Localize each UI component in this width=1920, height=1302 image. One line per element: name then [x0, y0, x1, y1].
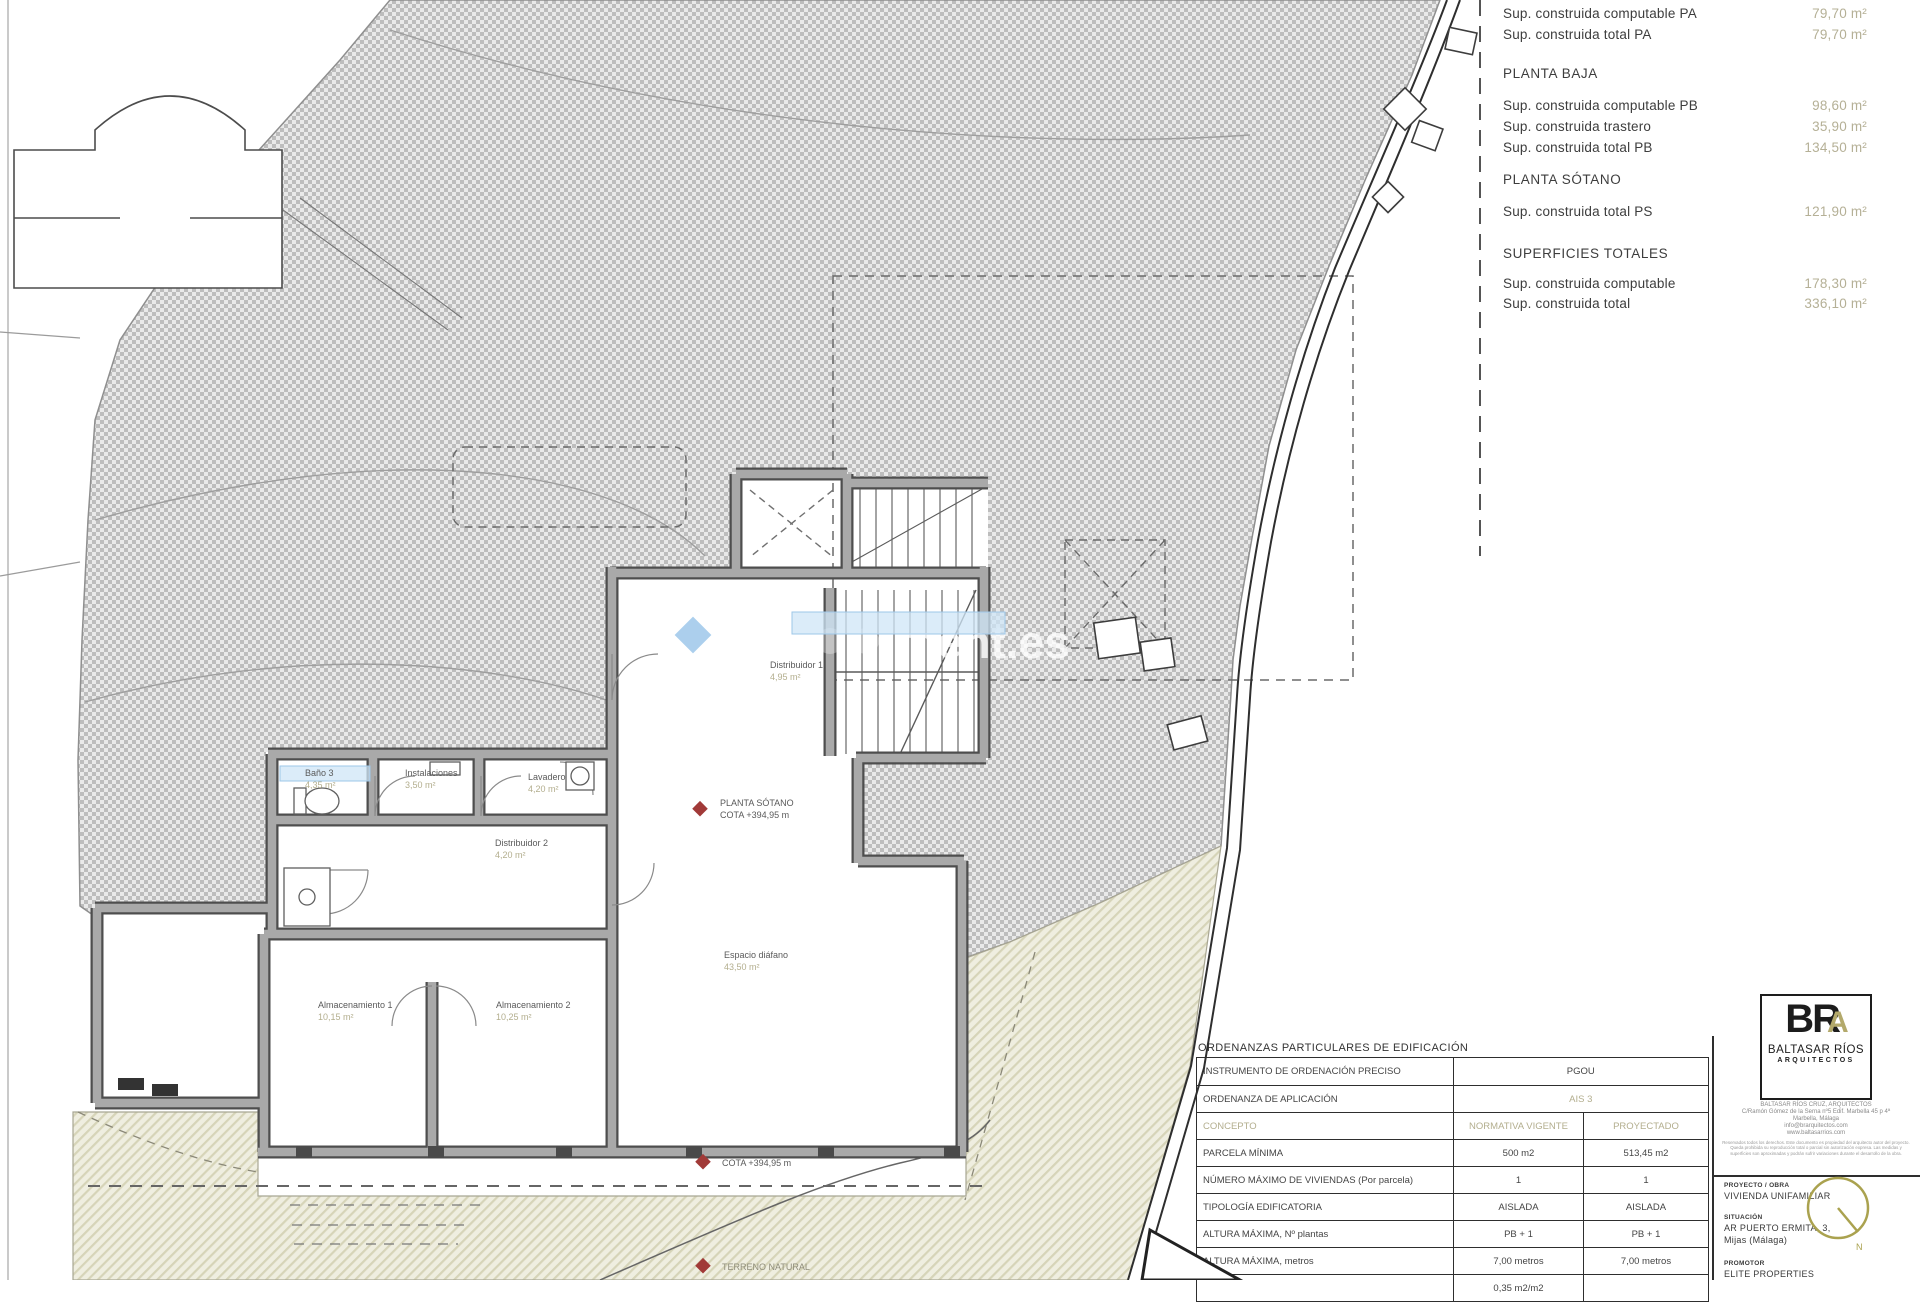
- svg-text:4,20 m²: 4,20 m²: [495, 850, 526, 860]
- upper-floor-overlay: [833, 276, 1353, 680]
- room-label-instalaciones: Instalaciones: [405, 768, 458, 778]
- level-markers: PLANTA SÓTANO COTA +394,95 m COTA +394,9…: [692, 798, 810, 1273]
- architect-logo: BRA BALTASAR RÍOS ARQUITECTOS: [1760, 994, 1872, 1100]
- svg-text:3,50 m²: 3,50 m²: [405, 780, 436, 790]
- neighbor-building-outline: [14, 96, 282, 288]
- watermark-text: ment.es: [896, 616, 1070, 668]
- summary-row: Sup. construida total PB134,50 m²: [1503, 140, 1903, 158]
- section-title-totales: SUPERFICIES TOTALES: [1503, 246, 1668, 261]
- table-row: NÚMERO MÁXIMO DE VIVIENDAS (Por parcela)…: [1197, 1166, 1708, 1193]
- svg-text:4,20 m²: 4,20 m²: [528, 784, 559, 794]
- terrain-curve: [600, 1120, 990, 1280]
- summary-row: Sup. construida computable PB98,60 m²: [1503, 98, 1903, 116]
- terrain-hatch-gray: [78, 0, 1440, 1000]
- room-label-espacio: Espacio diáfano: [724, 950, 788, 960]
- walls-core: [95, 474, 988, 1152]
- bathroom-fixtures: [284, 762, 594, 926]
- svg-text:43,50 m²: 43,50 m²: [724, 962, 760, 972]
- firm-address: BALTASAR RÍOS CRUZ, ARQUITECTOS C/Ramón …: [1718, 1102, 1914, 1137]
- room-label-almacenamiento1: Almacenamiento 1: [318, 1000, 393, 1010]
- summary-row: Sup. construida computable PA79,70 m²: [1503, 6, 1903, 24]
- room-label-distribuidor2: Distribuidor 2: [495, 838, 548, 848]
- table-row: PARCELA MÍNIMA500 m2513,45 m2: [1197, 1139, 1708, 1166]
- project-label: PROYECTO / OBRA: [1724, 1182, 1789, 1189]
- svg-text:4,35 m²: 4,35 m²: [305, 780, 336, 790]
- location-value-2: Mijas (Málaga): [1724, 1235, 1787, 1245]
- location-label: SITUACIÓN: [1724, 1214, 1762, 1221]
- summary-row: Sup. construida total PS121,90 m²: [1503, 204, 1903, 222]
- marker-label-terreno: TERRENO NATURAL: [722, 1262, 810, 1272]
- terrace-piers: [296, 1146, 960, 1158]
- room-label-almacenamiento2: Almacenamiento 2: [496, 1000, 571, 1010]
- divider: [1714, 1175, 1920, 1177]
- table-row: ORDENANZA DE APLICACIÓNAIS 3: [1197, 1085, 1708, 1112]
- highlight-bar-stair: [792, 612, 1005, 634]
- firm-subtitle: ARQUITECTOS: [1762, 1057, 1870, 1064]
- svg-text:4,95 m²: 4,95 m²: [770, 672, 801, 682]
- summary-row: Sup. construida computable178,30 m²: [1503, 276, 1903, 294]
- developer-label: PROMOTOR: [1724, 1260, 1765, 1267]
- table-row: INSTRUMENTO DE ORDENACIÓN PRECISOPGOU: [1197, 1058, 1708, 1085]
- title-block: BRA BALTASAR RÍOS ARQUITECTOS BALTASAR R…: [1712, 1036, 1920, 1280]
- table-header-row: CONCEPTONORMATIVA VIGENTEPROYECTADO: [1197, 1112, 1708, 1139]
- contour-lines: [85, 30, 1250, 702]
- stair-upper-run: [850, 483, 982, 567]
- shaft-x: [750, 490, 833, 557]
- terrain-lines: [78, 952, 1035, 1200]
- marker-label-sotano-1: PLANTA SÓTANO: [720, 798, 794, 808]
- road-structures: [1094, 27, 1477, 750]
- legal-text: Reservados todos los derechos. Este docu…: [1722, 1140, 1910, 1156]
- window-markers: [118, 1078, 178, 1096]
- ordinance-table-title: ORDENANZAS PARTICULARES DE EDIFICACIÓN: [1198, 1042, 1709, 1054]
- table-row: ALTURA MÁXIMA, Nº plantasPB + 1PB + 1: [1197, 1220, 1708, 1247]
- pool-overlay: [453, 447, 686, 527]
- project-value: VIVIENDA UNIFAMILIAR: [1724, 1191, 1831, 1201]
- level-marker-icon: [695, 1258, 711, 1274]
- ordinance-table: ORDENANZAS PARTICULARES DE EDIFICACIÓN I…: [1196, 1042, 1709, 1302]
- svg-text:10,15 m²: 10,15 m²: [318, 1012, 354, 1022]
- watermark: ment.es: [675, 616, 1070, 668]
- plan-floor: [95, 474, 988, 1196]
- terrain-pocket: [864, 764, 982, 859]
- summary-row: Sup. construida total336,10 m²: [1503, 296, 1903, 314]
- level-marker-icon: [695, 1154, 711, 1170]
- walls-outline: [95, 474, 988, 1152]
- level-marker-icon: [692, 801, 708, 817]
- summary-row: Sup. construida total PA79,70 m²: [1503, 27, 1903, 45]
- terrain-hatch-beige: [73, 846, 1221, 1280]
- section-title-planta-baja: PLANTA BAJA: [1503, 66, 1598, 81]
- garden-step-dashes: [290, 1205, 482, 1244]
- room-label-bano3: Baño 3: [305, 768, 334, 778]
- drawing-sheet: Sup. construida computable PA79,70 m² Su…: [0, 0, 1920, 1280]
- boundary-lines: [283, 198, 462, 330]
- svg-text:10,25 m²: 10,25 m²: [496, 1012, 532, 1022]
- room-label-lavadero: Lavadero: [528, 772, 566, 782]
- developer-value: ELITE PROPERTIES: [1724, 1269, 1814, 1279]
- table-row: 0,35 m2/m2: [1197, 1274, 1708, 1301]
- room-label-distribuidor1: Distribuidor 1: [770, 660, 823, 670]
- stair-main: [832, 590, 984, 754]
- door-arcs: [324, 654, 658, 1026]
- table-row: ALTURA MÁXIMA, metros7,00 metros7,00 met…: [1197, 1247, 1708, 1274]
- shaft-overlay: [1065, 540, 1165, 648]
- highlight-bar-bano: [280, 766, 370, 781]
- firm-name: BALTASAR RÍOS: [1762, 1044, 1870, 1056]
- marker-label-cota: COTA +394,95 m: [722, 1158, 791, 1168]
- room-labels: Baño 3 4,35 m² Instalaciones 3,50 m² Lav…: [305, 660, 823, 1022]
- summary-row: Sup. construida trastero35,90 m²: [1503, 119, 1903, 137]
- marker-label-sotano-2: COTA +394,95 m: [720, 810, 789, 820]
- table-row: TIPOLOGÍA EDIFICATORIAAISLADAAISLADA: [1197, 1193, 1708, 1220]
- logo-accent-a: A: [1827, 1006, 1847, 1039]
- location-value-1: AR PUERTO ERMITA, 3,: [1724, 1223, 1831, 1233]
- section-title-planta-sotano: PLANTA SÓTANO: [1503, 172, 1621, 187]
